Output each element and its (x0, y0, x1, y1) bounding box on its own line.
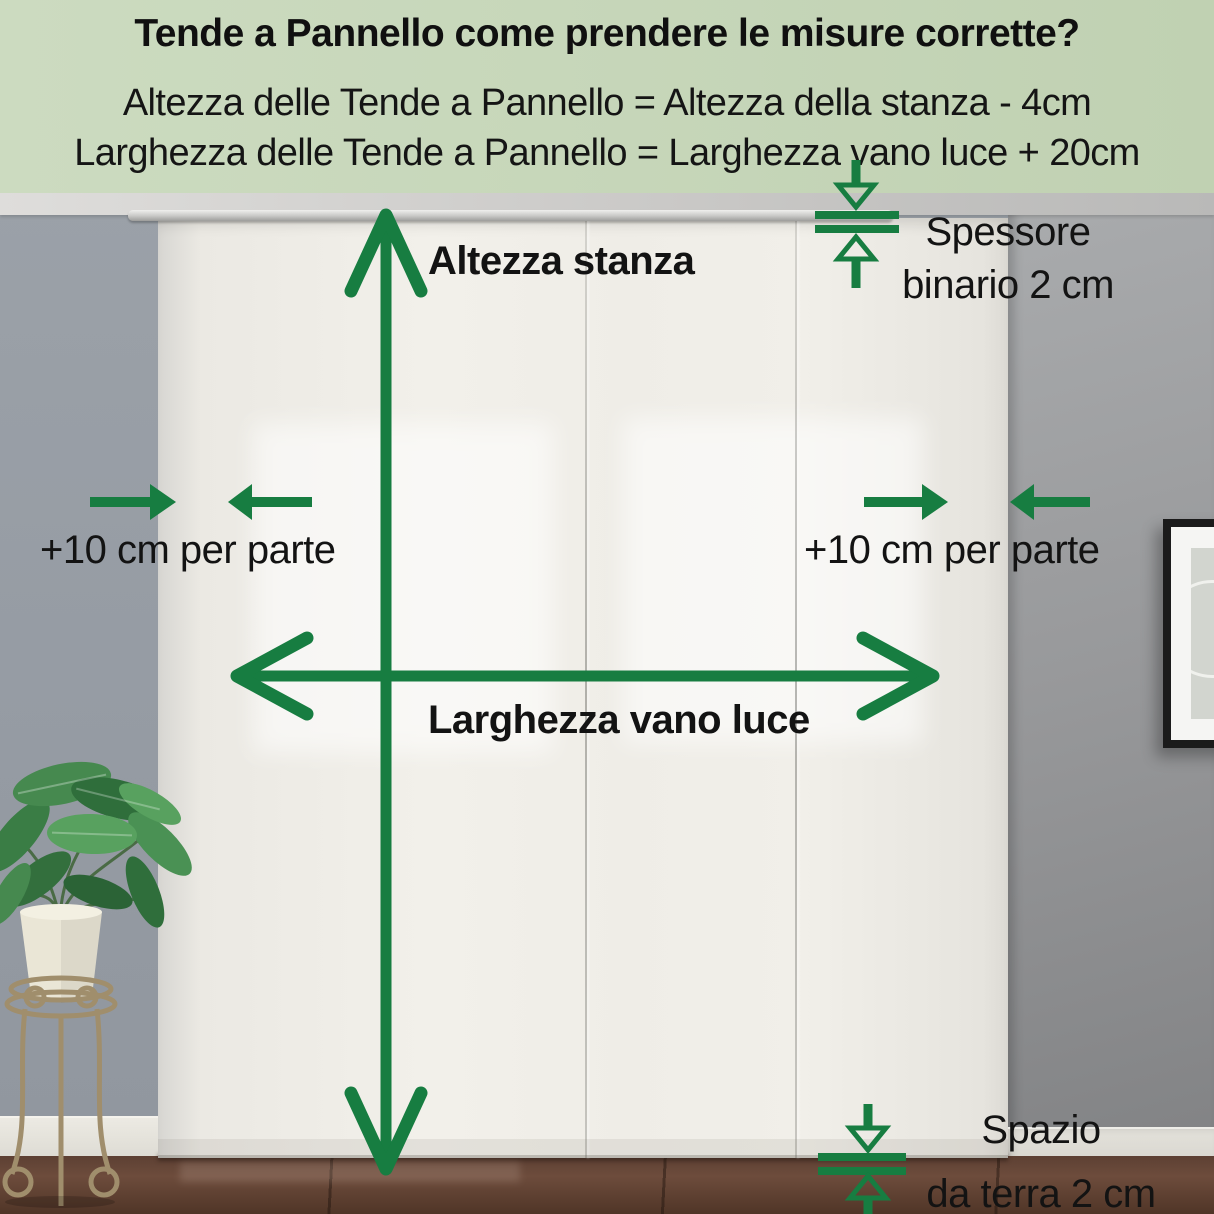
right-margin-label: +10 cm per parte (804, 528, 1100, 573)
frame-mat (1171, 527, 1214, 740)
plant-stand (5, 978, 117, 1206)
page-title: Tende a Pannello come prendere le misure… (0, 12, 1214, 56)
header: Tende a Pannello come prendere le misure… (0, 0, 1214, 193)
opening-width-label: Larghezza vano luce (428, 698, 810, 743)
measurement-infographic: Altezza stanza Larghezza vano luce +10 c… (0, 0, 1214, 1214)
floor-gap-label: Spazio da terra 2 cm (898, 1098, 1184, 1214)
potted-plant (0, 744, 200, 1214)
artwork-circle (1191, 580, 1214, 678)
room-height-label: Altezza stanza (428, 239, 694, 284)
floor-gap-label-line1: Spazio (898, 1098, 1184, 1162)
width-formula: Larghezza delle Tende a Pannello = Largh… (0, 132, 1214, 175)
panel-divider (585, 218, 587, 1158)
curtain-bottom-hem (158, 1139, 1008, 1158)
curtain-track (128, 210, 893, 221)
floor-gap-label-line2: da terra 2 cm (898, 1162, 1184, 1214)
track-thickness-label-line1: Spessore (880, 206, 1136, 259)
plant-leaves (0, 754, 200, 932)
left-margin-label: +10 cm per parte (40, 528, 336, 573)
panel-curtain (158, 218, 1008, 1158)
track-thickness-label: Spessore binario 2 cm (880, 206, 1136, 312)
picture-frame (1163, 519, 1214, 748)
window-reflection (623, 418, 923, 743)
plant-shadow (5, 1196, 115, 1208)
floor-light-reflection (180, 1162, 520, 1182)
track-thickness-label-line2: binario 2 cm (880, 259, 1136, 312)
height-formula: Altezza delle Tende a Pannello = Altezza… (0, 82, 1214, 125)
panel-divider (795, 218, 797, 1158)
frame-artwork (1191, 548, 1214, 719)
